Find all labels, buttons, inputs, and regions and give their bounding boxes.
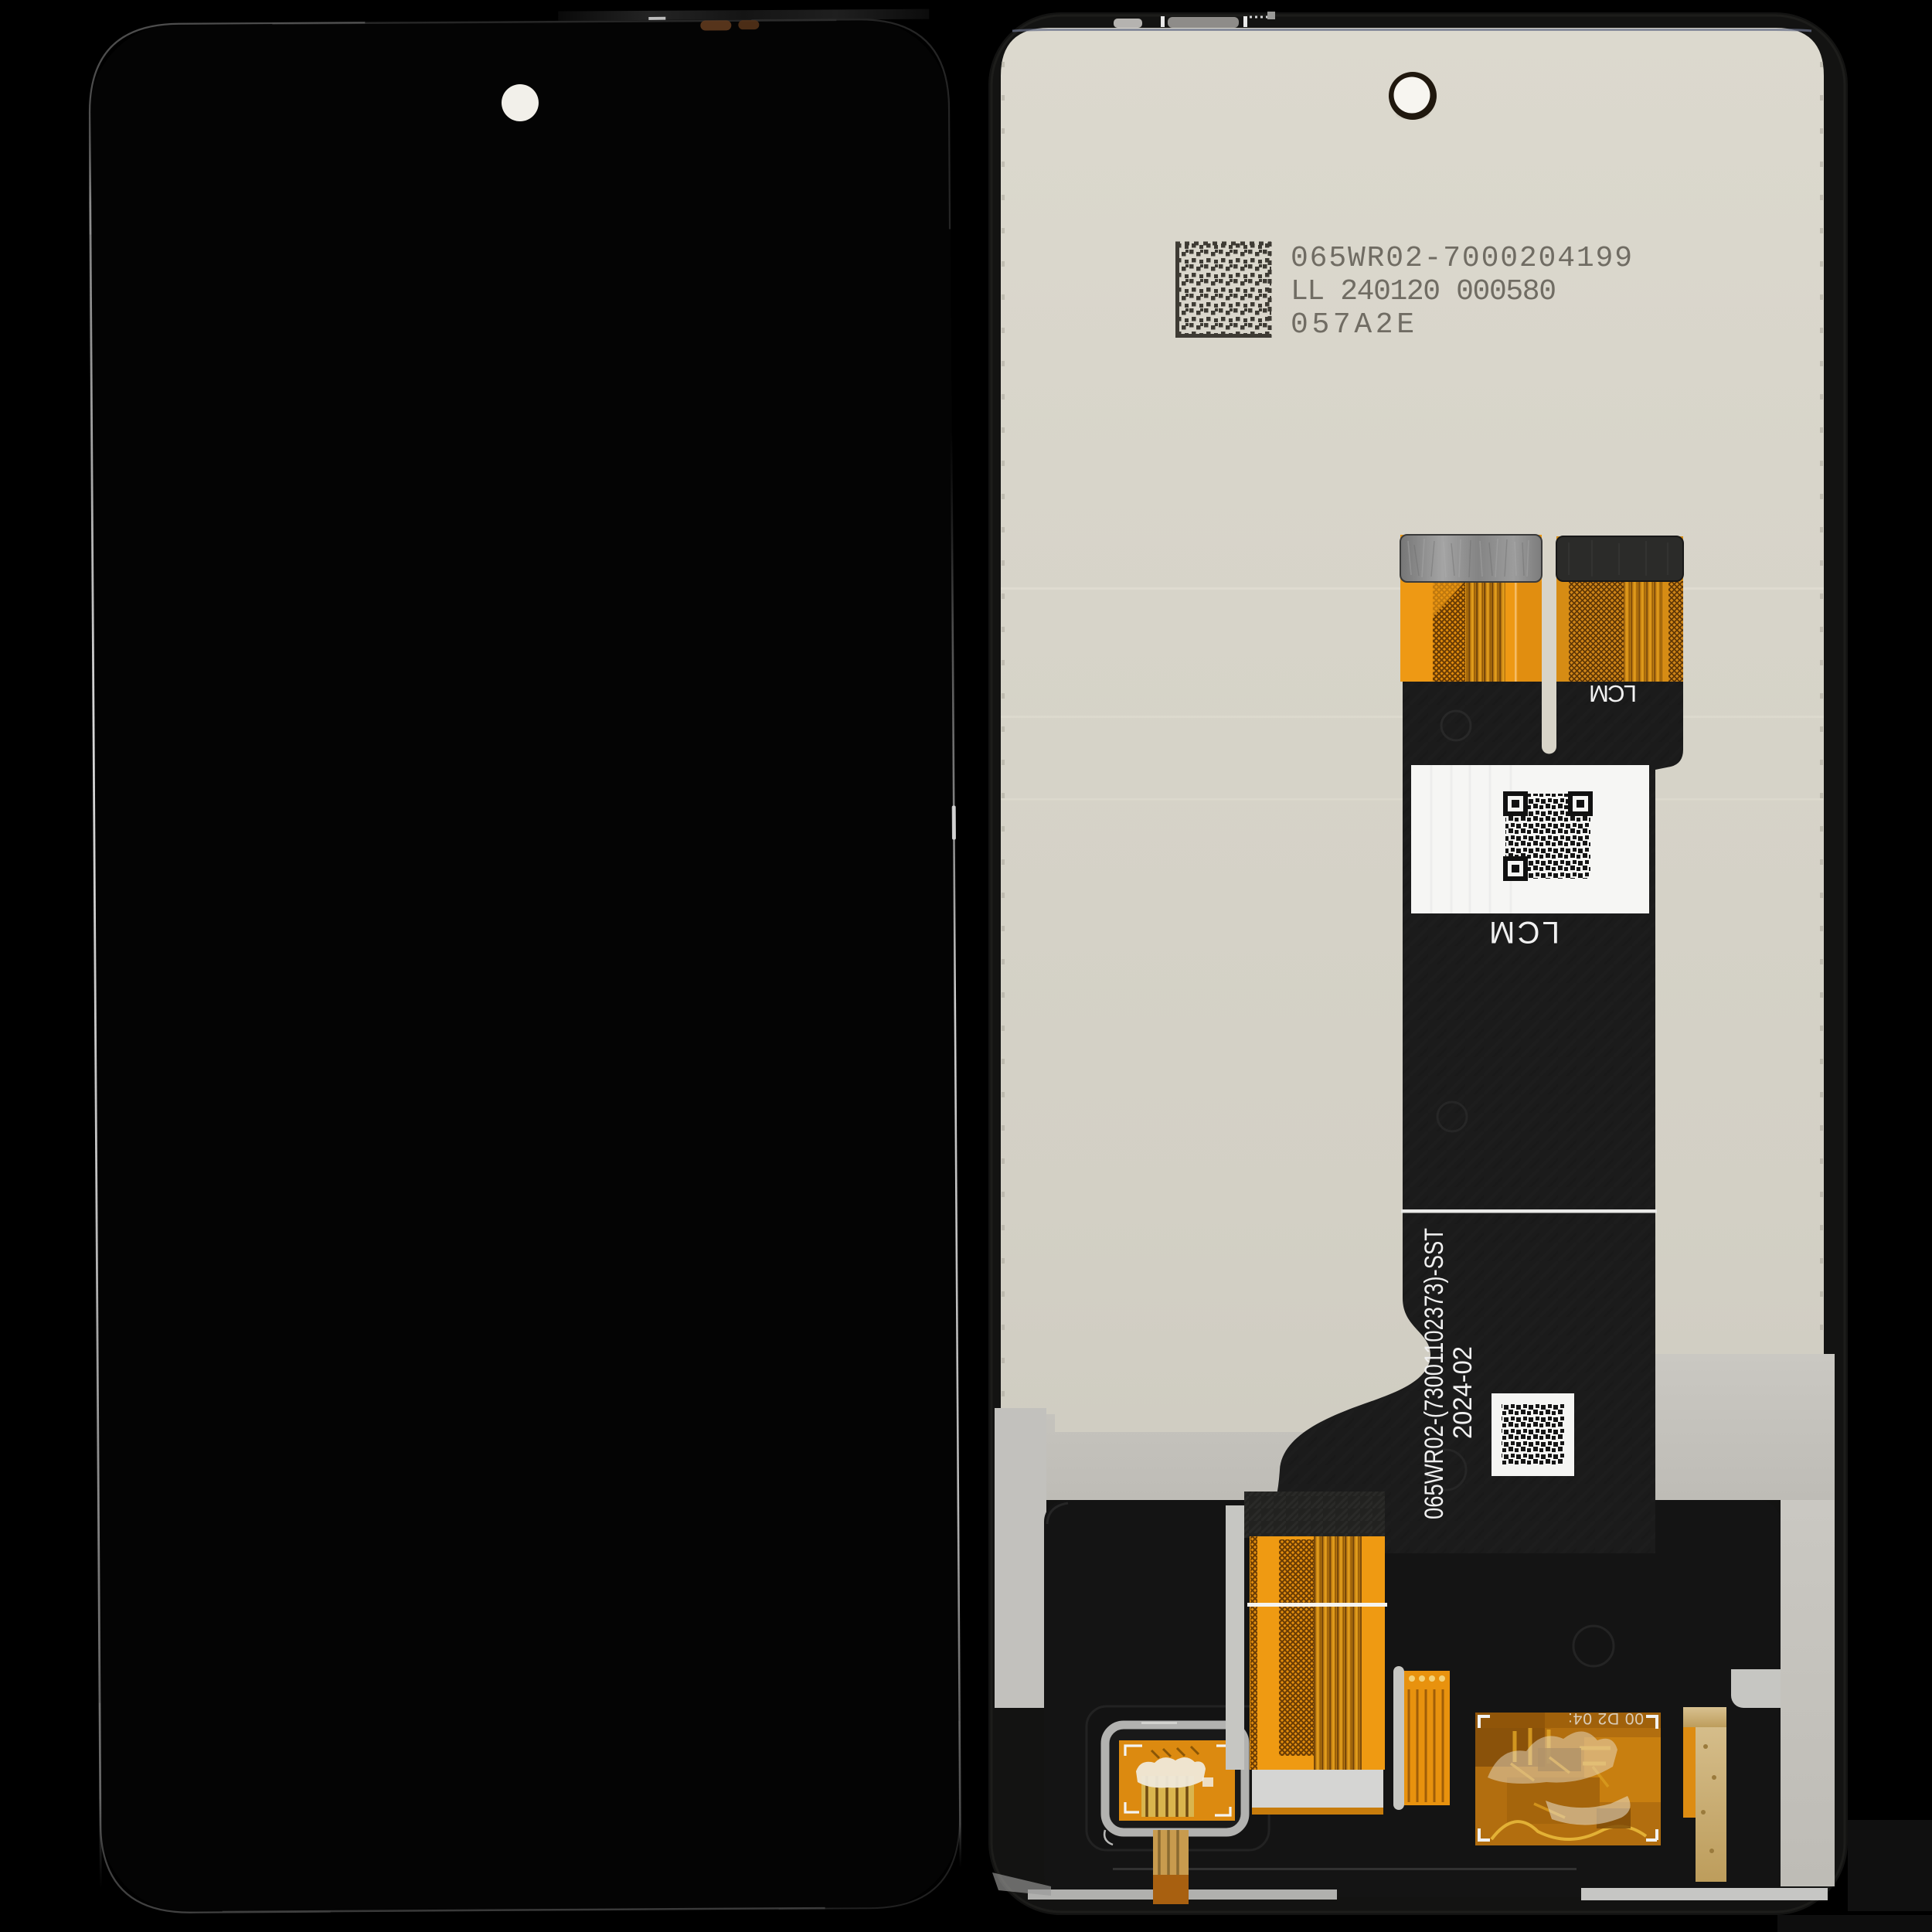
svg-text:LL 240120 000580: LL 240120 000580 xyxy=(1291,275,1556,308)
svg-text:065WR02-(73001102373)-SST: 065WR02-(73001102373)-SST xyxy=(1420,1228,1449,1519)
svg-text:065WR02-7000204199: 065WR02-7000204199 xyxy=(1291,242,1632,275)
svg-text:2024-02: 2024-02 xyxy=(1448,1346,1478,1439)
svg-text:LCM: LCM xyxy=(1489,915,1560,949)
svg-text:LCM: LCM xyxy=(1589,680,1637,707)
svg-text:00 D2 04:: 00 D2 04: xyxy=(1568,1709,1644,1727)
